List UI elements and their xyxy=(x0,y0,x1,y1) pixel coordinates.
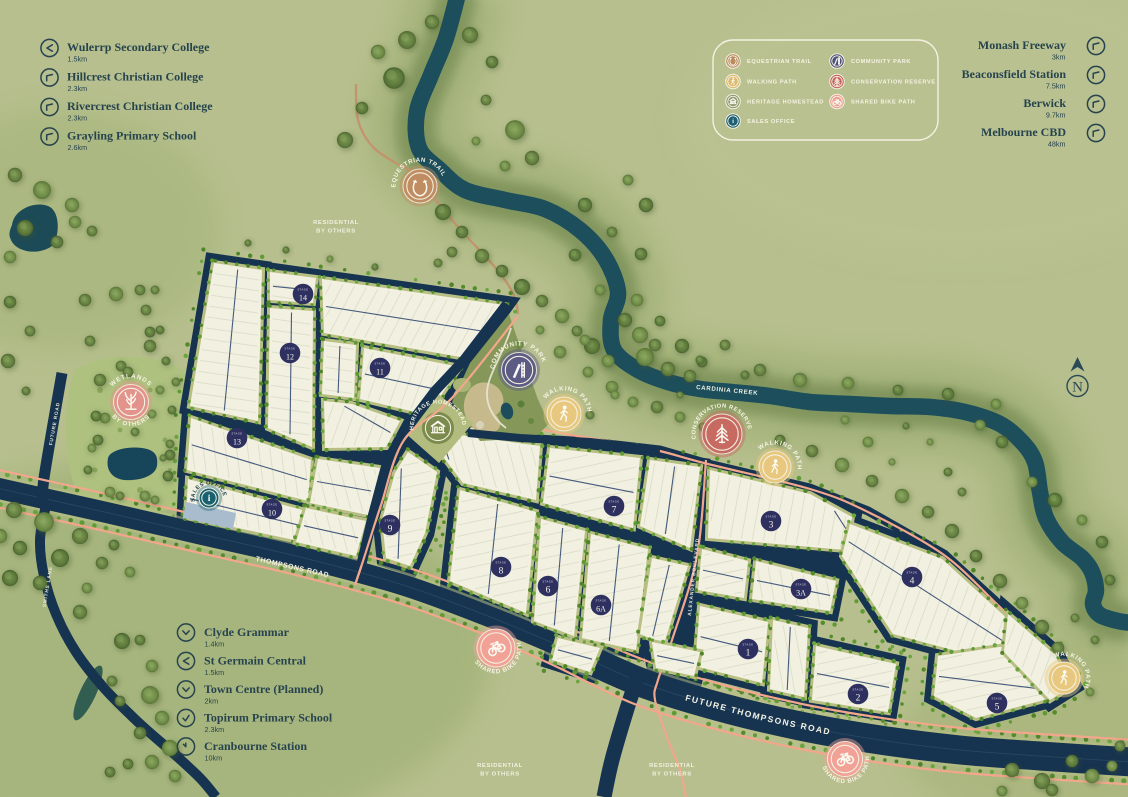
svg-text:7.5km: 7.5km xyxy=(1046,82,1066,91)
svg-text:STAGE: STAGE xyxy=(595,599,606,603)
svg-text:SHARED BIKE PATH: SHARED BIKE PATH xyxy=(851,100,915,106)
svg-text:2.3km: 2.3km xyxy=(68,84,88,93)
svg-text:2.3km: 2.3km xyxy=(68,114,88,123)
svg-text:BY OTHERS: BY OTHERS xyxy=(316,229,356,235)
svg-text:SALES OFFICE: SALES OFFICE xyxy=(747,119,795,125)
svg-text:STAGE: STAGE xyxy=(991,697,1002,701)
svg-text:3km: 3km xyxy=(1052,53,1066,62)
svg-text:13: 13 xyxy=(233,437,241,446)
svg-text:STAGE: STAGE xyxy=(906,571,917,575)
svg-text:5: 5 xyxy=(995,702,1000,712)
svg-text:St Germain Central: St Germain Central xyxy=(204,654,307,668)
svg-text:9.7km: 9.7km xyxy=(1046,111,1066,120)
svg-text:COMMUNITY PARK: COMMUNITY PARK xyxy=(851,59,911,65)
svg-text:STAGE: STAGE xyxy=(765,515,776,519)
svg-text:Hillcrest Christian College: Hillcrest Christian College xyxy=(67,70,204,84)
svg-text:10km: 10km xyxy=(205,754,223,763)
svg-text:4: 4 xyxy=(910,576,915,586)
svg-text:Beaconsfield Station: Beaconsfield Station xyxy=(962,67,1067,81)
svg-text:EQUESTRIAN TRAIL: EQUESTRIAN TRAIL xyxy=(747,59,812,65)
svg-text:Topirum Primary School: Topirum Primary School xyxy=(204,711,333,725)
svg-text:Grayling Primary School: Grayling Primary School xyxy=(67,129,197,143)
svg-text:STAGE: STAGE xyxy=(266,503,277,507)
svg-text:3A: 3A xyxy=(796,588,806,597)
svg-text:7: 7 xyxy=(612,505,617,515)
svg-text:6: 6 xyxy=(546,585,551,595)
svg-text:i: i xyxy=(208,494,211,504)
svg-text:STAGE: STAGE xyxy=(852,688,863,692)
svg-text:STAGE: STAGE xyxy=(231,432,242,436)
svg-text:STAGE: STAGE xyxy=(284,347,295,351)
svg-text:N: N xyxy=(1072,380,1083,396)
svg-text:10: 10 xyxy=(268,508,276,517)
svg-text:8: 8 xyxy=(499,566,504,576)
svg-text:Cranbourne Station: Cranbourne Station xyxy=(204,739,307,753)
svg-text:9: 9 xyxy=(388,524,393,534)
svg-text:11: 11 xyxy=(376,367,384,376)
svg-text:2.6km: 2.6km xyxy=(68,143,88,152)
svg-text:CONSERVATION RESERVE: CONSERVATION RESERVE xyxy=(851,80,936,86)
svg-text:12: 12 xyxy=(286,352,294,361)
svg-text:1.5km: 1.5km xyxy=(205,668,225,677)
svg-text:Rivercrest Christian College: Rivercrest Christian College xyxy=(67,99,213,113)
svg-text:RESIDENTIAL: RESIDENTIAL xyxy=(477,763,523,769)
svg-text:WALKING PATH: WALKING PATH xyxy=(747,80,797,86)
svg-text:2: 2 xyxy=(856,693,861,703)
svg-text:STAGE: STAGE xyxy=(795,583,806,587)
svg-text:3: 3 xyxy=(769,520,774,530)
svg-text:HERITAGE HOMESTEAD: HERITAGE HOMESTEAD xyxy=(747,100,824,106)
svg-text:1.4km: 1.4km xyxy=(205,640,225,649)
svg-text:RESIDENTIAL: RESIDENTIAL xyxy=(313,220,359,226)
svg-text:6A: 6A xyxy=(596,604,606,613)
svg-text:Melbourne CBD: Melbourne CBD xyxy=(981,125,1066,139)
svg-text:1: 1 xyxy=(746,648,751,658)
svg-text:14: 14 xyxy=(299,293,307,302)
svg-text:Monash Freeway: Monash Freeway xyxy=(978,38,1066,52)
svg-text:48km: 48km xyxy=(1048,140,1066,149)
svg-text:STAGE: STAGE xyxy=(542,580,553,584)
svg-text:RESIDENTIAL: RESIDENTIAL xyxy=(649,763,695,769)
svg-text:1.5km: 1.5km xyxy=(68,55,88,64)
svg-text:2km: 2km xyxy=(205,697,219,706)
svg-text:Berwick: Berwick xyxy=(1023,96,1066,110)
svg-text:STAGE: STAGE xyxy=(608,500,619,504)
svg-text:BY OTHERS: BY OTHERS xyxy=(480,772,520,778)
svg-text:Clyde Grammar: Clyde Grammar xyxy=(204,625,290,639)
svg-text:STAGE: STAGE xyxy=(742,643,753,647)
svg-text:Wulerrp Secondary College: Wulerrp Secondary College xyxy=(67,40,210,54)
svg-text:Town Centre (Planned): Town Centre (Planned) xyxy=(204,682,323,696)
svg-text:STAGE: STAGE xyxy=(384,519,395,523)
svg-text:STAGE: STAGE xyxy=(495,561,506,565)
svg-text:2.3km: 2.3km xyxy=(205,725,225,734)
svg-text:BY OTHERS: BY OTHERS xyxy=(652,772,692,778)
svg-text:STAGE: STAGE xyxy=(297,288,308,292)
svg-text:STAGE: STAGE xyxy=(374,362,385,366)
